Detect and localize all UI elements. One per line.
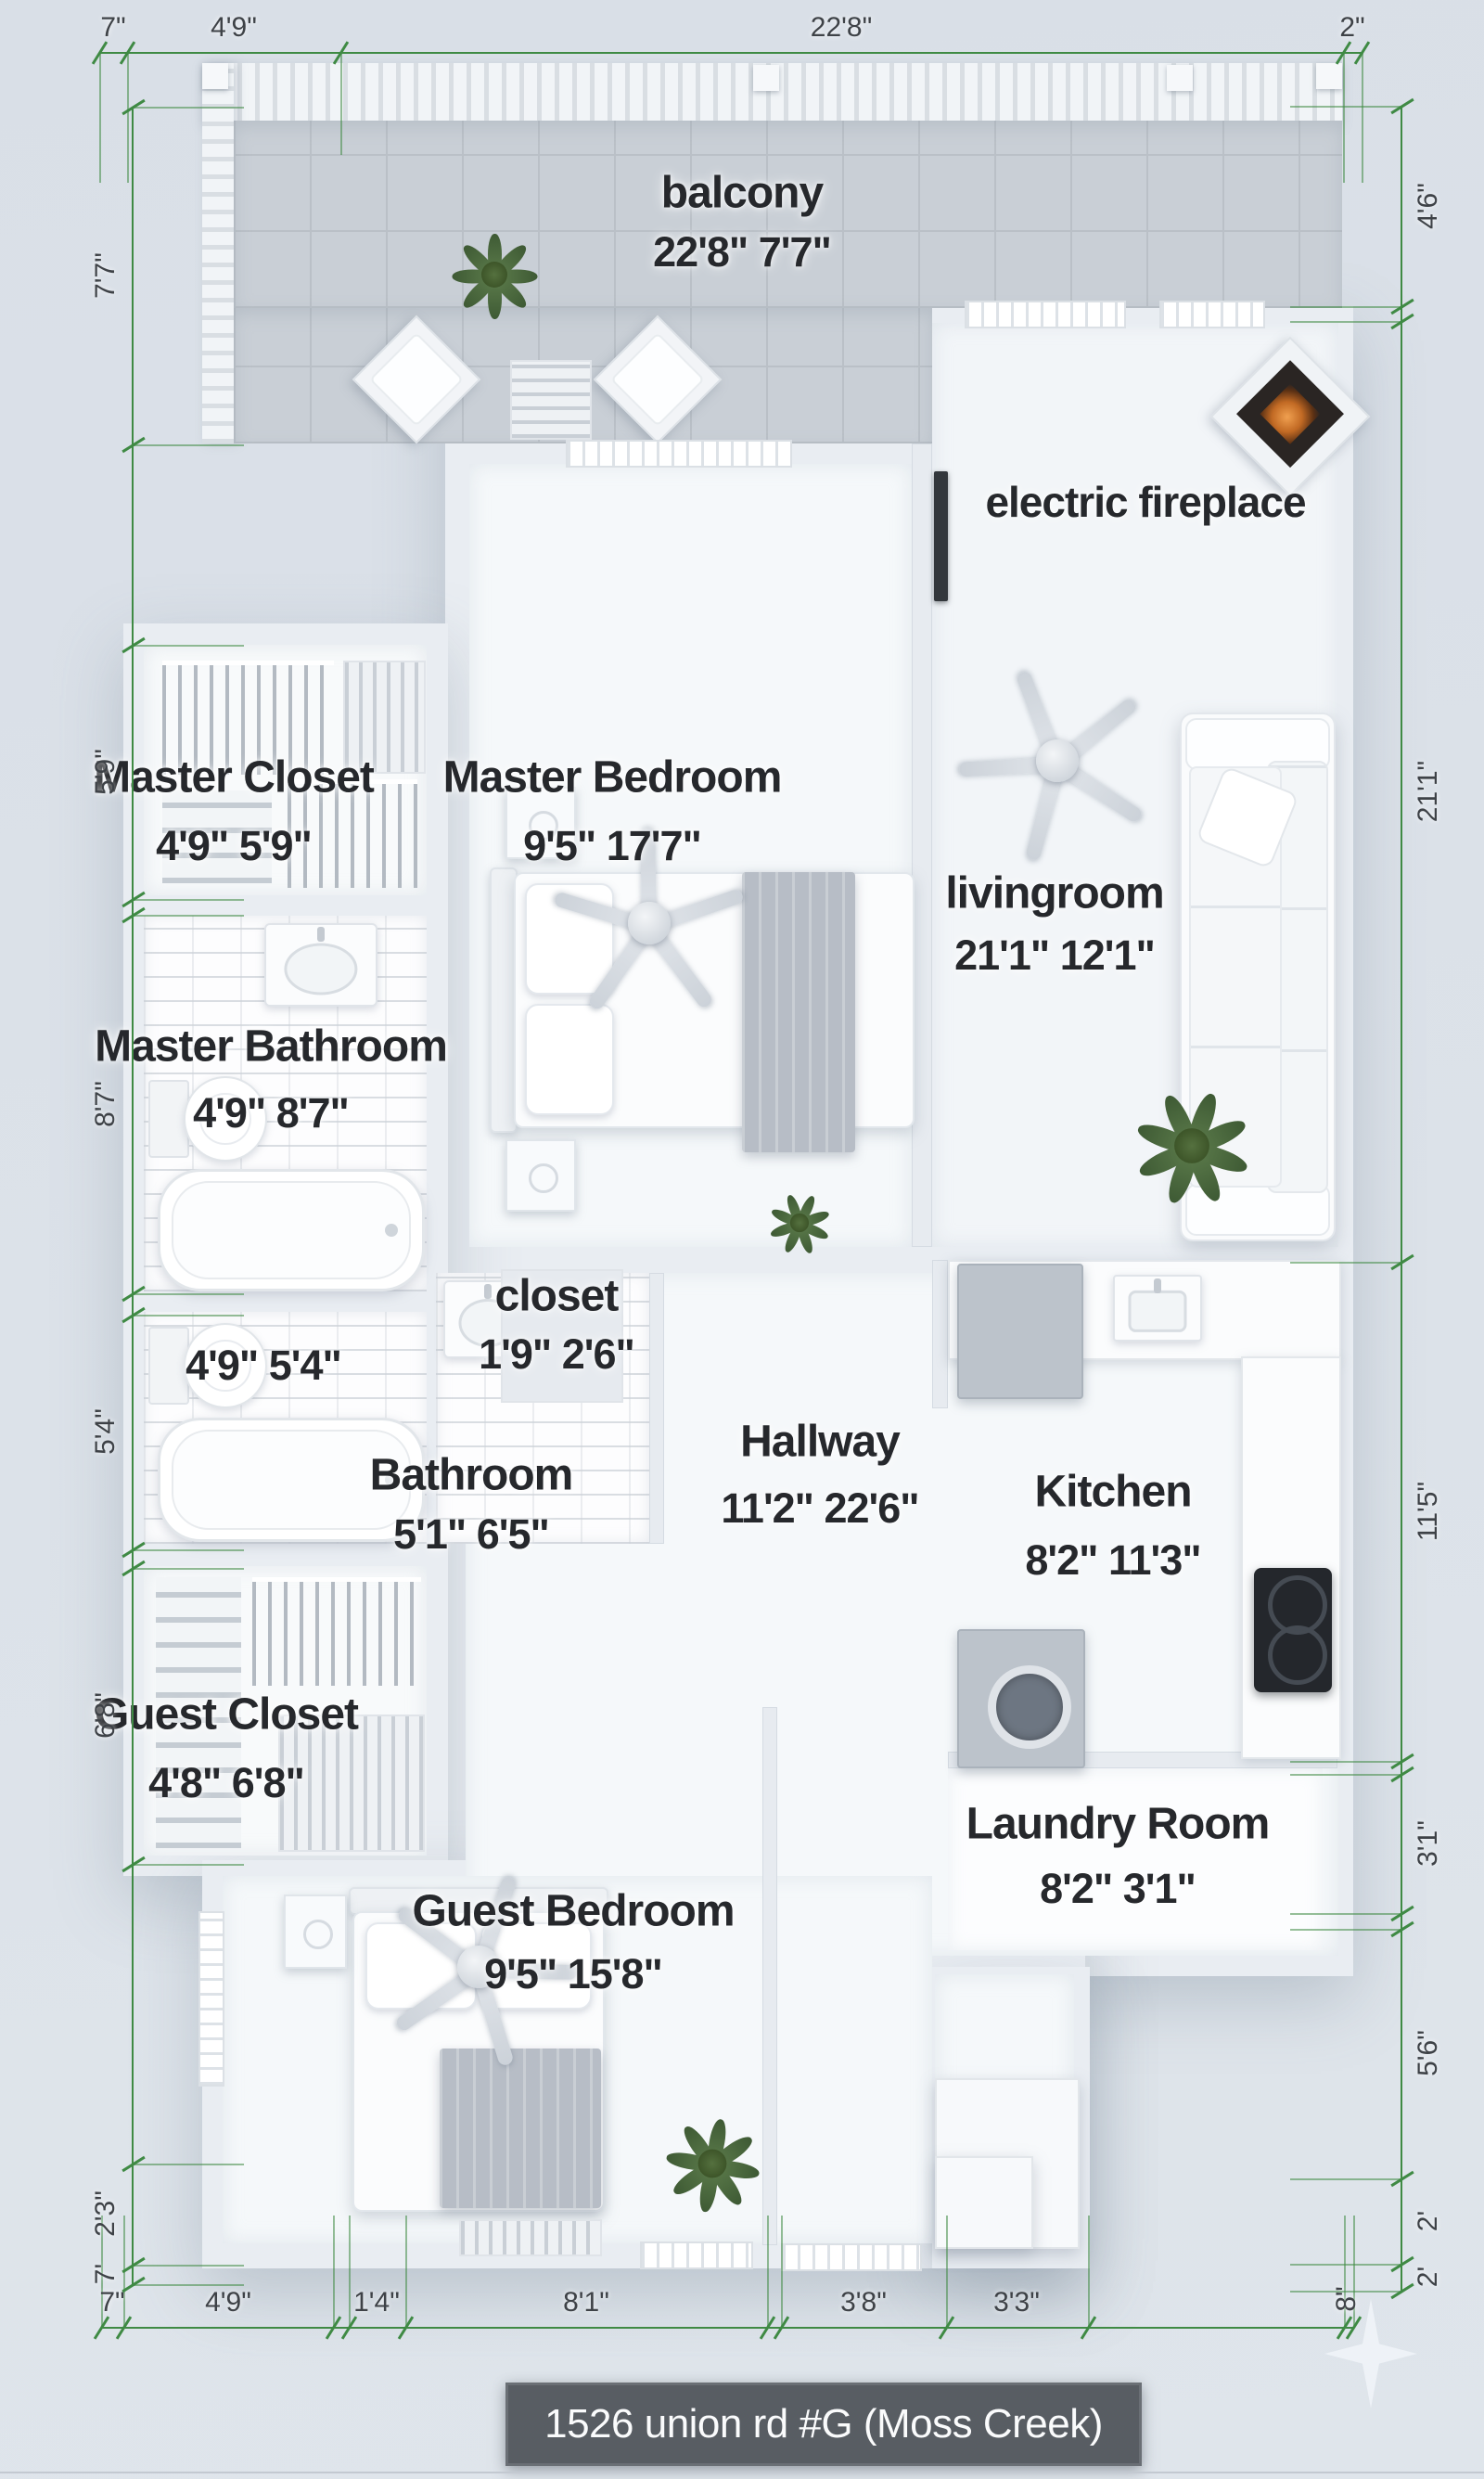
nightstand bbox=[505, 1139, 576, 1212]
floor-plan-canvas: balcony 22'8" 7'7" electric fireplace Ma… bbox=[0, 0, 1484, 2479]
dims-balcony: 22'8" 7'7" bbox=[653, 228, 831, 276]
master-bedroom-window bbox=[566, 440, 792, 468]
label-guest-closet: Guest Closet bbox=[95, 1689, 358, 1740]
dim-stub bbox=[133, 1293, 244, 1295]
dim-label: 21'1" bbox=[1413, 761, 1444, 822]
label-laundry-room: Laundry Room bbox=[966, 1799, 1270, 1850]
dim-stub bbox=[133, 1568, 244, 1570]
label-livingroom: livingroom bbox=[945, 868, 1163, 919]
entry-step bbox=[935, 2156, 1033, 2249]
label-bathroom: Bathroom bbox=[370, 1450, 573, 1501]
dim-label: 7' bbox=[90, 2264, 122, 2284]
address-title-bar: 1526 union rd #G (Moss Creek) bbox=[505, 2383, 1142, 2466]
dim-stub bbox=[133, 107, 244, 109]
dim-label: 3'8" bbox=[840, 2287, 887, 2318]
dim-label: 3'1" bbox=[1413, 1820, 1444, 1867]
living-room-window bbox=[1159, 301, 1265, 328]
dim-stub bbox=[1290, 106, 1401, 108]
dims-closet: 1'9" 2'6" bbox=[479, 1330, 634, 1379]
dim-stub bbox=[946, 2216, 948, 2327]
dim-stub bbox=[133, 899, 244, 901]
dim-stub bbox=[133, 1864, 244, 1866]
dims-master-closet: 4'9" 5'9" bbox=[156, 822, 312, 870]
dim-stub bbox=[1290, 1774, 1401, 1776]
fireplace-icon bbox=[1234, 360, 1345, 471]
dim-line-top bbox=[99, 52, 1362, 54]
label-kitchen: Kitchen bbox=[1034, 1467, 1191, 1518]
dim-stub bbox=[1290, 1929, 1401, 1931]
label-master-closet: Master Closet bbox=[94, 752, 374, 803]
dims-hallway: 11'2" 22'6" bbox=[721, 1484, 918, 1533]
laundry-room-floor bbox=[948, 1768, 1323, 1950]
nightstand bbox=[284, 1895, 347, 1969]
guest-bedroom-hallway-wall bbox=[762, 1707, 777, 2245]
dim-stub bbox=[1290, 2291, 1401, 2293]
dim-stub bbox=[1290, 2178, 1401, 2180]
dims-kitchen: 8'2" 11'3" bbox=[1025, 1536, 1200, 1585]
address-title-text: 1526 union rd #G (Moss Creek) bbox=[544, 2401, 1103, 2447]
dim-label: 4'9" bbox=[211, 12, 257, 44]
dims-laundry-room: 8'2" 3'1" bbox=[1040, 1865, 1196, 1913]
dim-stub bbox=[133, 1315, 244, 1317]
label-balcony: balcony bbox=[661, 168, 823, 219]
dim-label: 7" bbox=[100, 12, 125, 44]
four-point-star-icon bbox=[1324, 2299, 1417, 2408]
dim-line-left bbox=[132, 107, 134, 2284]
dim-stub bbox=[405, 2216, 407, 2327]
dim-stub bbox=[1290, 2264, 1401, 2266]
balcony-railing-left bbox=[202, 63, 234, 443]
dim-label: 8'1" bbox=[563, 2287, 609, 2318]
dim-label: 7'7" bbox=[90, 252, 122, 299]
dim-stub bbox=[1343, 53, 1345, 183]
dims-second-bathroom: 4'9" 5'4" bbox=[185, 1342, 341, 1390]
label-closet: closet bbox=[495, 1271, 619, 1322]
railing-post bbox=[753, 65, 779, 91]
dim-stub bbox=[133, 915, 244, 917]
bed-pillow bbox=[525, 1004, 614, 1115]
dim-stub bbox=[133, 2284, 244, 2286]
dim-stub bbox=[1290, 306, 1401, 308]
bench-rack bbox=[459, 2219, 602, 2256]
dims-master-bathroom: 4'9" 8'7" bbox=[193, 1089, 349, 1137]
railing-post bbox=[1316, 63, 1342, 89]
dim-line-bottom bbox=[101, 2327, 1353, 2329]
label-electric-fireplace: electric fireplace bbox=[985, 477, 1305, 527]
dim-label: 2'3" bbox=[90, 2190, 122, 2237]
dim-stub bbox=[133, 645, 244, 647]
bottom-wall-window bbox=[640, 2241, 753, 2269]
dim-stub bbox=[333, 2216, 335, 2327]
balcony-side-table bbox=[510, 360, 592, 440]
dim-label: 8'7" bbox=[90, 1081, 122, 1127]
dim-label: 2' bbox=[1413, 2267, 1444, 2287]
dim-stub bbox=[133, 2164, 244, 2165]
stove-cooktop bbox=[1254, 1568, 1332, 1692]
label-master-bedroom: Master Bedroom bbox=[443, 752, 782, 803]
dim-stub bbox=[340, 53, 342, 155]
guest-bedroom-window bbox=[198, 1911, 224, 2087]
dim-stub bbox=[349, 2216, 351, 2327]
label-master-bathroom: Master Bathroom bbox=[95, 1021, 447, 1073]
bottom-wall-window bbox=[781, 2243, 922, 2271]
bathroom-hallway-wall bbox=[649, 1273, 664, 1544]
dim-label: 6'8" bbox=[90, 1692, 122, 1739]
dim-label: 2" bbox=[1339, 12, 1364, 44]
dim-label: 4'6" bbox=[1413, 183, 1444, 229]
dims-guest-closet: 4'8" 6'8" bbox=[148, 1759, 304, 1807]
dim-stub bbox=[1088, 2216, 1090, 2327]
label-guest-bedroom: Guest Bedroom bbox=[412, 1886, 734, 1937]
kitchen-counter-right bbox=[1241, 1356, 1341, 1759]
closet-hanging-rack bbox=[252, 1577, 421, 1686]
kitchen-hallway-wall bbox=[932, 1260, 948, 1408]
dim-stub bbox=[1362, 53, 1363, 183]
dim-label: 22'8" bbox=[811, 12, 872, 44]
dim-label: 5'9" bbox=[90, 749, 122, 795]
bed-throw-blanket bbox=[440, 2049, 601, 2208]
dims-livingroom: 21'1" 12'1" bbox=[954, 931, 1155, 980]
dim-stub bbox=[127, 53, 129, 183]
dims-master-bedroom: 9'5" 17'7" bbox=[523, 822, 701, 870]
label-hallway: Hallway bbox=[740, 1417, 900, 1468]
dim-line-right bbox=[1401, 106, 1402, 2291]
living-room-window bbox=[965, 301, 1126, 328]
dim-label: 5'6" bbox=[1413, 2030, 1444, 2076]
dim-label: 11'5" bbox=[1413, 1482, 1444, 1541]
railing-post bbox=[202, 63, 228, 89]
dims-guest-bedroom: 9'5" 15'8" bbox=[484, 1950, 662, 1998]
dim-stub bbox=[133, 2265, 244, 2267]
dim-label: 4'9" bbox=[205, 2287, 251, 2318]
kitchen-sink bbox=[1113, 1275, 1202, 1342]
washing-machine bbox=[957, 1629, 1085, 1768]
dim-label: 3'3" bbox=[993, 2287, 1040, 2318]
dim-label: 2' bbox=[1413, 2211, 1444, 2231]
bed-throw-blanket bbox=[742, 872, 855, 1152]
dim-label: 5'4" bbox=[90, 1408, 122, 1455]
dim-stub bbox=[781, 2216, 783, 2327]
dim-stub bbox=[767, 2216, 769, 2327]
dim-stub bbox=[1290, 1262, 1401, 1264]
refrigerator bbox=[957, 1264, 1083, 1399]
dim-label: 7" bbox=[99, 2287, 124, 2318]
dim-stub bbox=[133, 444, 244, 446]
dim-stub bbox=[1290, 1913, 1401, 1915]
bathtub bbox=[158, 1169, 425, 1291]
bedroom-living-divider-wall bbox=[912, 443, 932, 1247]
dim-stub bbox=[1290, 1761, 1401, 1763]
dim-stub bbox=[133, 1549, 244, 1551]
tv-icon bbox=[934, 471, 948, 601]
bottom-border-line bbox=[0, 2472, 1484, 2473]
dim-label: 1'4" bbox=[353, 2287, 400, 2318]
dim-stub bbox=[99, 53, 101, 183]
bathroom-sink bbox=[264, 923, 377, 1007]
railing-post bbox=[1167, 65, 1193, 91]
dim-stub bbox=[1290, 321, 1401, 323]
dims-bathroom: 5'1" 6'5" bbox=[393, 1510, 549, 1559]
